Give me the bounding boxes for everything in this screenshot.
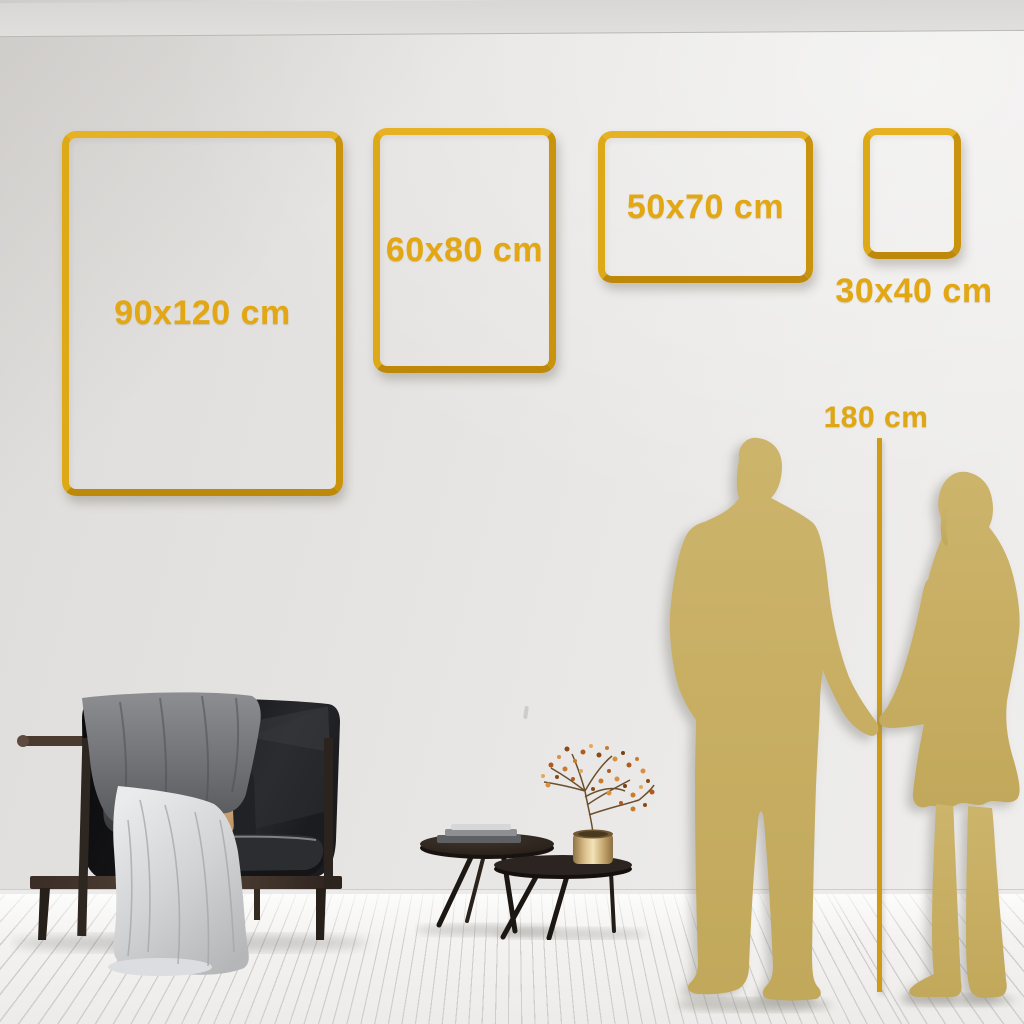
ceiling-seam [0, 0, 1024, 37]
couple-floor-shadow [676, 998, 832, 1012]
size-frame-30x40 [863, 128, 961, 259]
size-guide-scene: 90x120 cm 60x80 cm 50x70 cm 30x40 cm [0, 0, 1024, 1024]
sofa-throw-pool [108, 958, 212, 976]
size-frame-50x70: 50x70 cm [598, 131, 813, 283]
sofa-rear-leg [254, 886, 260, 920]
sofa [10, 690, 420, 980]
couple-silhouette [636, 428, 1024, 1018]
man-silhouette [670, 438, 878, 1001]
sofa-front-leg [38, 888, 50, 940]
sofa-front-leg [316, 888, 326, 940]
size-frame-90x120: 90x120 cm [62, 131, 343, 496]
book-stack [437, 824, 521, 843]
size-label-90x120: 90x120 cm [114, 294, 291, 333]
size-frame-60x80: 60x80 cm [373, 128, 556, 373]
coffee-tables [415, 735, 660, 940]
size-label-60x80: 60x80 cm [386, 231, 543, 270]
woman-right-leg [966, 806, 1007, 998]
woman-silhouette [879, 472, 1019, 808]
size-label-50x70: 50x70 cm [627, 188, 784, 227]
sofa-armrest-knob [17, 735, 29, 747]
woman-left-leg [909, 804, 961, 997]
brass-vase [573, 830, 613, 865]
sofa-right-post [324, 738, 333, 888]
size-label-30x40: 30x40 cm [814, 272, 1014, 311]
